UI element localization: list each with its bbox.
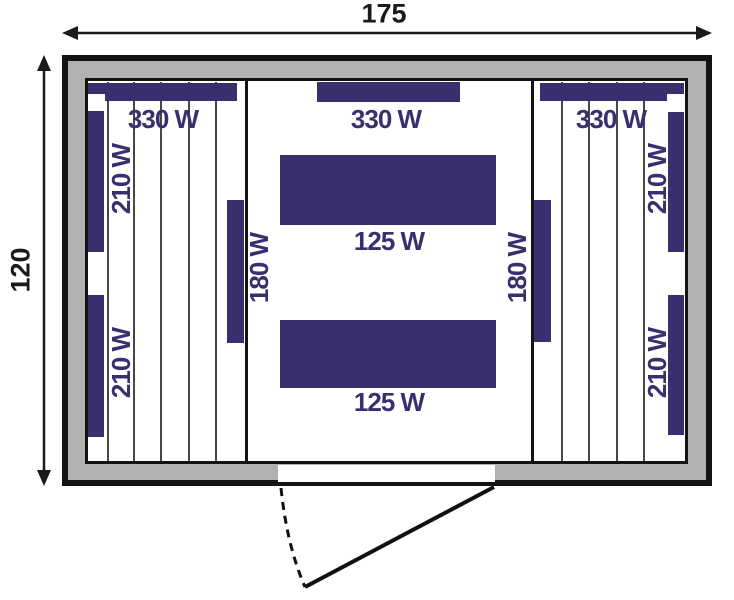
- heater-330w-right-bar: [540, 83, 684, 101]
- heater-330w-center-bar: [317, 82, 460, 102]
- label-330w-right: 330 W: [576, 106, 646, 132]
- bench-slat: [643, 82, 645, 461]
- arrowhead-up-icon: [37, 55, 51, 71]
- heater-125w-upper-bar: [280, 155, 496, 225]
- bench-slat: [160, 82, 162, 461]
- heater-180w-right-bar: [534, 200, 551, 342]
- label-height-dimension: 120: [8, 247, 35, 292]
- door-swing-arc: [281, 488, 305, 587]
- label-180w-left: 180 W: [246, 233, 272, 303]
- label-180w-right: 180 W: [504, 233, 530, 303]
- label-125w-upper: 125 W: [354, 228, 424, 254]
- label-210w-left-lower: 210 W: [108, 328, 134, 398]
- door-opening: [278, 465, 495, 482]
- sauna-floor-plan: 330 W 330 W 330 W 210 W 210 W 210 W 210 …: [0, 0, 734, 600]
- label-width-dimension: 175: [361, 1, 406, 28]
- bench-slat: [215, 82, 217, 461]
- arrowhead-down-icon: [37, 470, 51, 486]
- bench-slat: [616, 82, 618, 461]
- bench-slat: [588, 82, 590, 461]
- label-330w-center: 330 W: [351, 106, 421, 132]
- bench-slat: [188, 82, 190, 461]
- heater-corner-notch: [88, 94, 105, 111]
- label-330w-left: 330 W: [128, 106, 198, 132]
- label-210w-right-lower: 210 W: [644, 328, 670, 398]
- label-210w-left-upper: 210 W: [108, 144, 134, 214]
- heater-125w-lower-bar: [280, 320, 496, 388]
- heater-corner-notch: [667, 94, 684, 112]
- arrowhead-right-icon: [696, 26, 712, 40]
- height-dimension-arrow: [37, 55, 51, 486]
- bench-slat: [107, 82, 109, 461]
- heater-210w-left-lower-bar: [88, 295, 104, 437]
- heater-330w-left-bar: [88, 83, 237, 101]
- bench-slat: [561, 82, 563, 461]
- arrowhead-left-icon: [62, 26, 78, 40]
- door: [281, 487, 494, 587]
- door-leaf: [305, 487, 494, 587]
- bench-slat: [133, 82, 135, 461]
- label-125w-lower: 125 W: [354, 389, 424, 415]
- heater-180w-left-bar: [227, 200, 244, 343]
- label-210w-right-upper: 210 W: [644, 144, 670, 214]
- heater-210w-left-upper-bar: [88, 110, 104, 252]
